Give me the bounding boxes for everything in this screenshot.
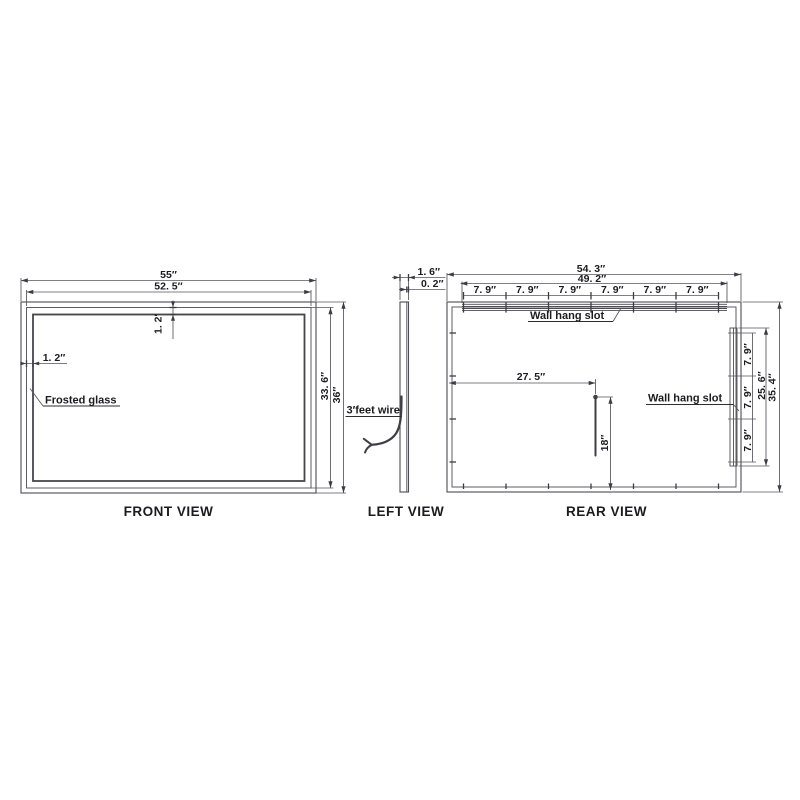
leader-line <box>30 389 43 407</box>
dim-front-overall-width: 55″ <box>160 269 177 281</box>
dim-side-spacing-3: 7. 9″ <box>742 429 754 452</box>
dim-front-overall-height: 36″ <box>331 387 343 404</box>
frosted-glass-label: Frosted glass <box>45 395 117 407</box>
rear-bottom-ticks <box>464 484 719 490</box>
dim-side-spacing-2: 7. 9″ <box>742 386 754 409</box>
front-view: 55″ 52. 5″ 1. 2′ 1. 2″ Frosted glass 33.… <box>20 269 346 519</box>
dim-hook-spacing-6: 7. 9″ <box>686 284 709 296</box>
arrowhead <box>394 276 400 280</box>
dim-hook-spacing-1: 7. 9″ <box>474 284 497 296</box>
dim-left-depth: 1. 6″ <box>418 266 441 278</box>
dim-rear-wire-offset: 27. 5″ <box>517 371 545 383</box>
dim-front-frame-left: 1. 2″ <box>43 352 66 364</box>
rear-view: 54. 3″ 49. 2″ 7. 9″ 7. 9″ 7. 9″ 7. 9″ 7.… <box>447 263 783 519</box>
side-hang-slot-label: Wall hang slot <box>648 393 722 405</box>
rear-left-ticks <box>450 333 457 462</box>
front-view-caption: FRONT VIEW <box>124 504 214 519</box>
rear-view-caption: REAR VIEW <box>566 504 647 519</box>
dim-hook-spacing-3: 7. 9″ <box>559 284 582 296</box>
arrowhead <box>171 315 175 321</box>
arrowhead <box>171 301 175 307</box>
arrowhead <box>409 276 415 280</box>
dim-front-glass-height: 33. 6″ <box>319 372 331 400</box>
dim-rear-overall-height: 35. 4″ <box>767 373 779 401</box>
top-hang-slot-label: Wall hang slot <box>530 310 604 322</box>
dim-left-glass-thickness: 0. 2″ <box>421 278 444 290</box>
arrowhead <box>33 362 39 366</box>
technical-drawing: 55″ 52. 5″ 1. 2′ 1. 2″ Frosted glass 33.… <box>0 0 800 800</box>
left-view: 1. 6″ 0. 2″ 3′feet wire LEFT VIEW <box>346 266 446 519</box>
wire-fork <box>365 445 372 453</box>
arrowhead <box>20 362 26 366</box>
dim-rear-wire-length: 18″ <box>599 435 611 452</box>
wire-label: 3′feet wire <box>347 405 400 417</box>
wire-fork <box>364 439 372 445</box>
dim-hook-spacing-5: 7. 9″ <box>644 284 667 296</box>
dim-hook-spacing-2: 7. 9″ <box>516 284 539 296</box>
dim-side-spacing-1: 7. 9″ <box>742 343 754 366</box>
dim-hook-spacing-4: 7. 9″ <box>601 284 624 296</box>
dim-front-glass-width: 52. 5″ <box>154 281 182 293</box>
left-view-caption: LEFT VIEW <box>368 504 445 519</box>
arrowhead <box>400 288 406 292</box>
dim-front-frame-top: 1. 2′ <box>153 314 165 335</box>
mirror-spec-drawing-page: 55″ 52. 5″ 1. 2′ 1. 2″ Frosted glass 33.… <box>0 0 800 800</box>
